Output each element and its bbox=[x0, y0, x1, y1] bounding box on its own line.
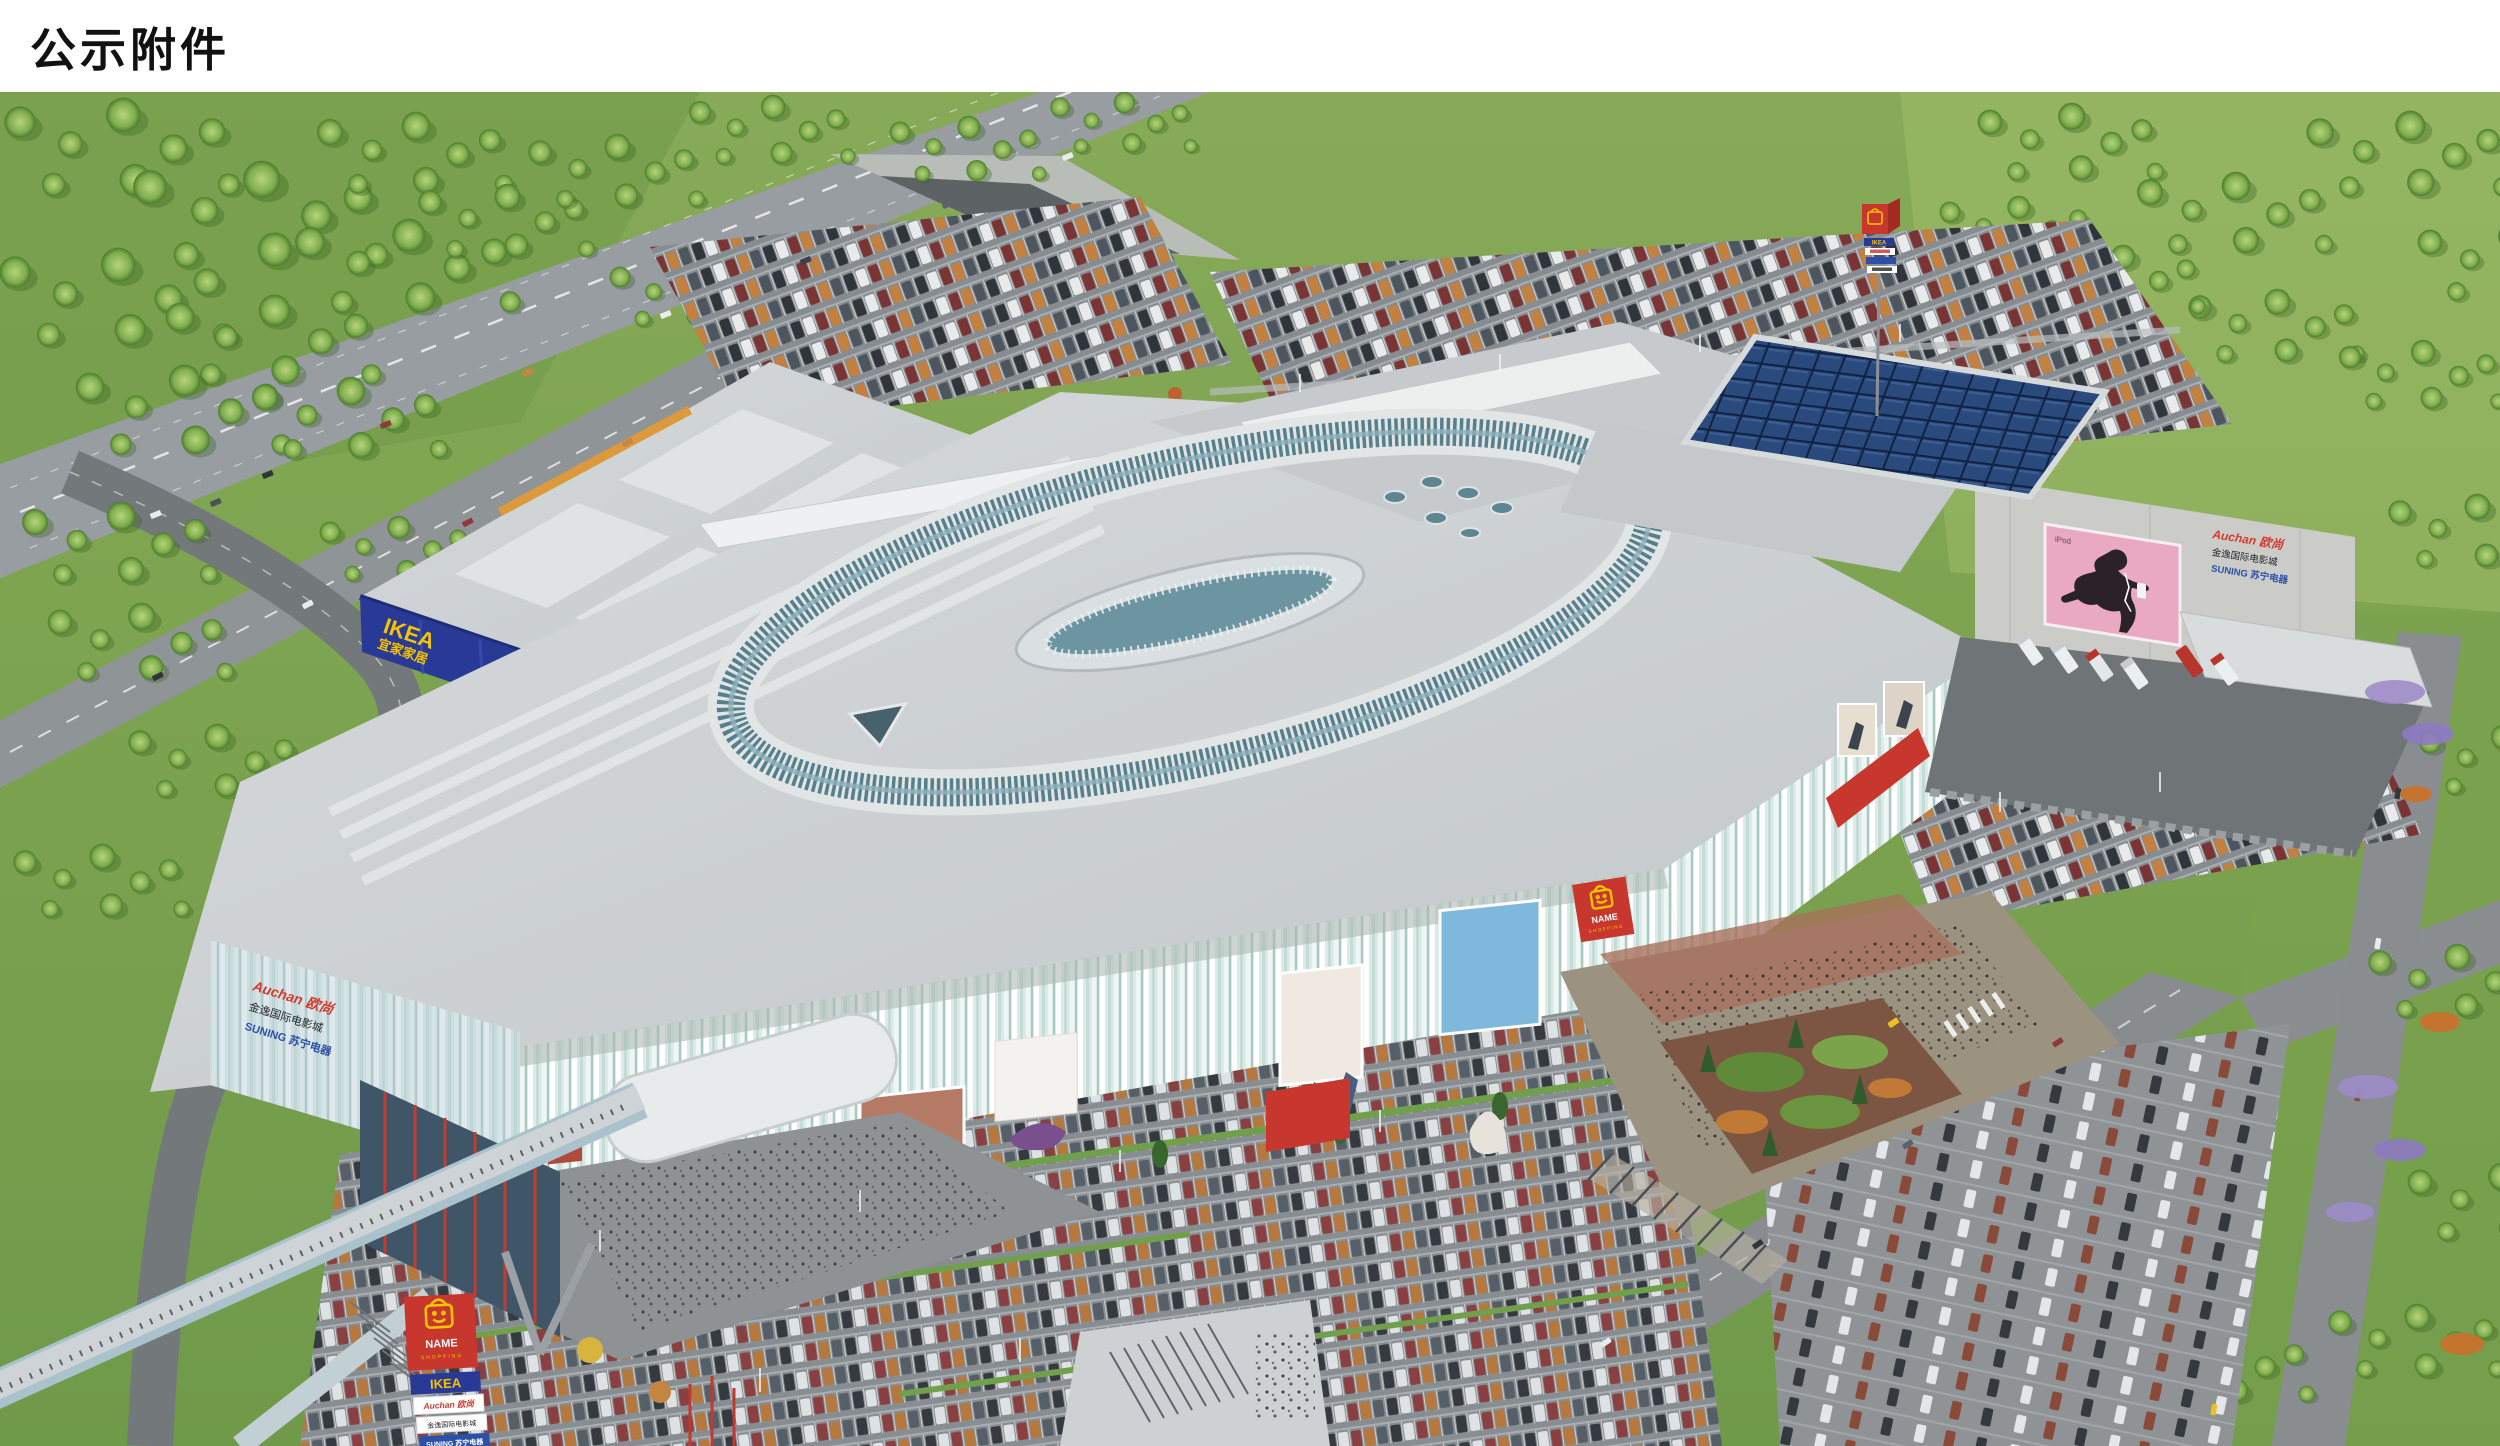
svg-text:IKEA: IKEA bbox=[430, 1375, 462, 1392]
page-title: 公示附件 bbox=[30, 14, 230, 80]
mall-logo-box: NAME SHOPPING bbox=[1572, 877, 1634, 943]
ipod-billboard: iPod bbox=[2045, 524, 2180, 645]
svg-text:NAME: NAME bbox=[425, 1337, 458, 1351]
ipod-device bbox=[2137, 583, 2146, 599]
aerial-render: IKEA 宜家家居 bbox=[0, 92, 2500, 1446]
header: 公示附件 bbox=[0, 0, 2500, 92]
aerial-render-svg: IKEA 宜家家居 bbox=[0, 92, 2500, 1446]
svg-text:IKEA: IKEA bbox=[1872, 241, 1887, 247]
